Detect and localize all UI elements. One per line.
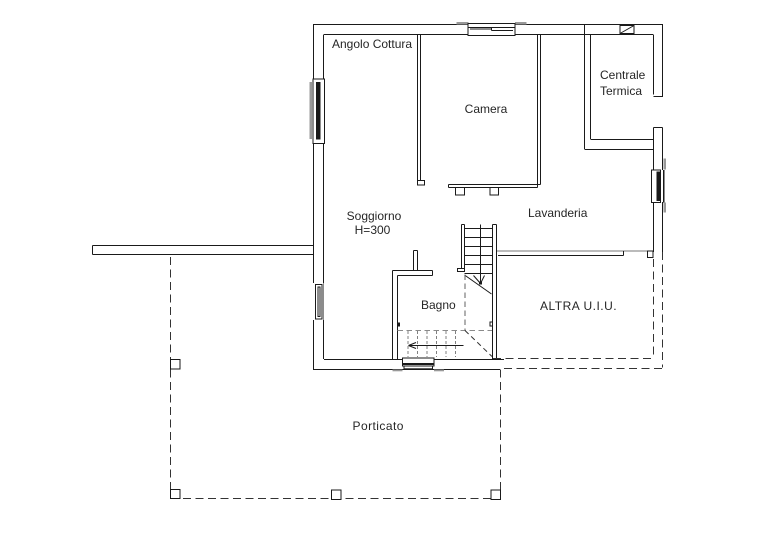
svg-text:ALTRA U.I.U.: ALTRA U.I.U. — [540, 299, 617, 313]
svg-text:Porticato: Porticato — [353, 419, 404, 433]
svg-text:H=300: H=300 — [355, 223, 391, 237]
svg-text:Centrale: Centrale — [600, 68, 646, 82]
svg-text:Termica: Termica — [600, 84, 642, 98]
svg-text:Soggiorno: Soggiorno — [347, 209, 402, 223]
svg-text:Bagno: Bagno — [421, 298, 456, 312]
svg-text:Angolo Cottura: Angolo Cottura — [332, 37, 412, 51]
svg-text:Lavanderia: Lavanderia — [528, 206, 588, 220]
svg-text:Camera: Camera — [465, 102, 508, 116]
